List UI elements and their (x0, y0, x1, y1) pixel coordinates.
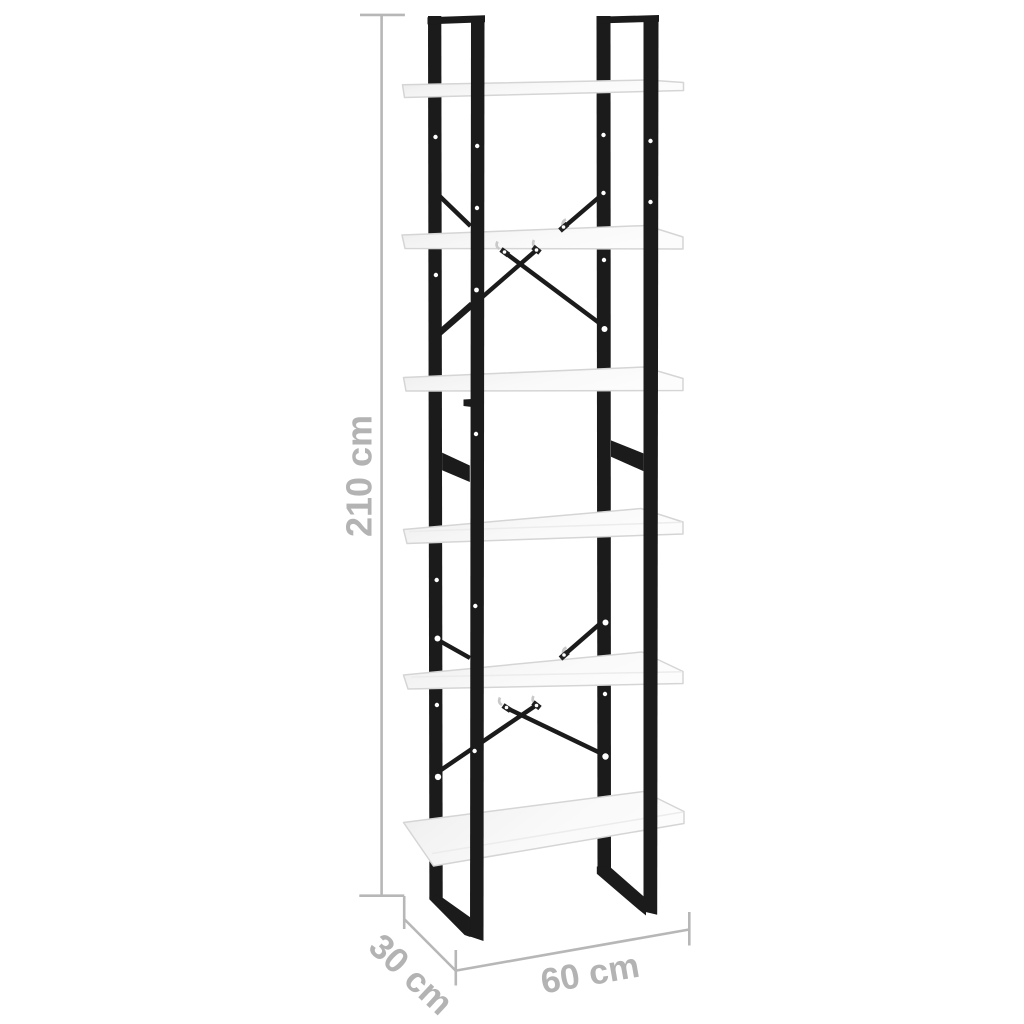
svg-text:210 cm: 210 cm (339, 415, 380, 537)
svg-text:30 cm: 30 cm (361, 926, 460, 1022)
